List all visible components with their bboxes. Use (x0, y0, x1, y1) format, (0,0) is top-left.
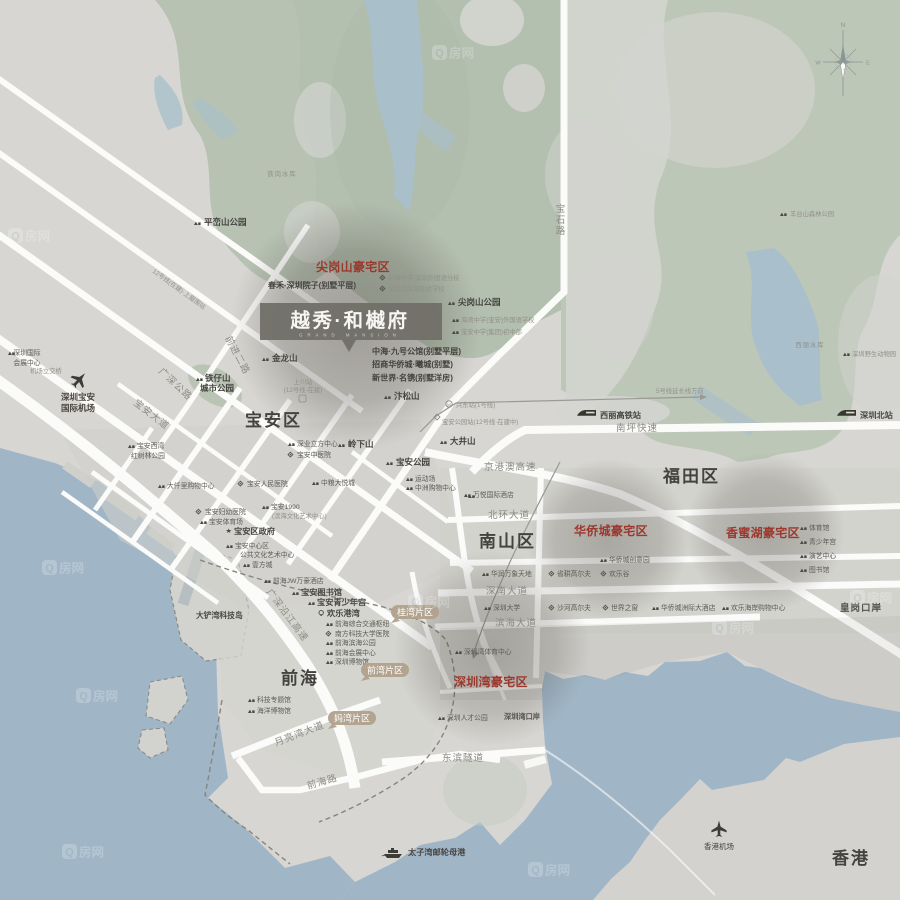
svg-text:福田区: 福田区 (662, 466, 720, 486)
svg-text:会展中心: 会展中心 (13, 358, 40, 367)
svg-text:星辉鸿荣源实验学校: 星辉鸿荣源实验学校 (388, 284, 445, 293)
svg-text:宝安中学(集团)初中部: 宝安中学(集团)初中部 (461, 327, 522, 336)
svg-text:南方科技大学医院: 南方科技大学医院 (335, 629, 390, 638)
svg-text:(12号线·在建): (12号线·在建) (284, 385, 322, 394)
svg-text:省耕高尔夫: 省耕高尔夫 (557, 569, 591, 578)
svg-text:深圳野生动物园: 深圳野生动物园 (852, 349, 896, 358)
svg-text:尖岗山豪宅区: 尖岗山豪宅区 (316, 259, 390, 274)
svg-text:机场立交桥: 机场立交桥 (30, 366, 62, 375)
svg-text:前海: 前海 (281, 668, 319, 688)
svg-text:招商华侨城·曦城(别墅): 招商华侨城·曦城(别墅) (372, 359, 453, 369)
svg-text:香港机场: 香港机场 (704, 841, 734, 851)
svg-text:宝安公园: 宝安公园 (396, 457, 430, 467)
svg-text:宝安体育场: 宝安体育场 (209, 517, 243, 526)
svg-text:妈湾片区: 妈湾片区 (334, 713, 370, 724)
svg-text:宝安中医院: 宝安中医院 (297, 450, 331, 459)
svg-text:汴松山: 汴松山 (394, 391, 420, 401)
svg-text:香蜜湖豪宅区: 香蜜湖豪宅区 (725, 525, 800, 540)
svg-text:大井山: 大井山 (450, 436, 476, 446)
svg-text:岭下山: 岭下山 (348, 439, 374, 449)
svg-text:西丽高铁站: 西丽高铁站 (600, 410, 642, 420)
svg-text:宝安青少年宫: 宝安青少年宫 (317, 597, 366, 607)
svg-text:前海滨海公园: 前海滨海公园 (335, 638, 376, 647)
svg-text:华侨城洲际大酒店: 华侨城洲际大酒店 (661, 603, 716, 612)
svg-text:铁岗水库: 铁岗水库 (267, 169, 296, 178)
svg-text:世界之窗: 世界之窗 (611, 603, 638, 612)
svg-text:香港: 香港 (832, 848, 870, 868)
svg-text:N: N (841, 22, 846, 29)
svg-text:宝安西湾: 宝安西湾 (137, 441, 164, 450)
svg-text:国际机场: 国际机场 (61, 403, 96, 413)
svg-text:(滨海文化艺术中心): (滨海文化艺术中心) (272, 511, 327, 520)
svg-text:华侨城豪宅区: 华侨城豪宅区 (574, 523, 648, 538)
svg-text:兴东站(1号线): 兴东站(1号线) (456, 400, 495, 409)
svg-text:深圳大学: 深圳大学 (493, 603, 520, 612)
svg-text:红树林公园: 红树林公园 (131, 451, 165, 460)
svg-text:大仟里购物中心: 大仟里购物中心 (167, 481, 215, 490)
svg-text:体育馆: 体育馆 (809, 523, 830, 532)
svg-text:前海JW万豪酒店: 前海JW万豪酒店 (273, 576, 324, 585)
svg-text:南山区: 南山区 (479, 531, 536, 551)
svg-text:欢乐海岸购物中心: 欢乐海岸购物中心 (731, 603, 786, 612)
svg-text:深业立方中心: 深业立方中心 (297, 439, 338, 448)
svg-text:中粮大悦城: 中粮大悦城 (321, 478, 355, 487)
svg-text:太子湾邮轮母港: 太子湾邮轮母港 (407, 847, 466, 857)
svg-text:华侨城创意园: 华侨城创意园 (609, 555, 650, 564)
svg-text:E: E (866, 61, 870, 67)
svg-text:深圳湾口岸: 深圳湾口岸 (504, 712, 540, 721)
svg-text:西丽水库: 西丽水库 (795, 340, 824, 349)
svg-text:图书馆: 图书馆 (809, 565, 830, 574)
svg-text:前湾片区: 前湾片区 (367, 665, 403, 676)
svg-text:前海综合交通枢纽: 前海综合交通枢纽 (335, 619, 390, 628)
svg-text:东滨隧道: 东滨隧道 (442, 752, 484, 764)
svg-text:宝安图书馆: 宝安图书馆 (301, 587, 342, 597)
svg-text:GRAND MANSION: GRAND MANSION (299, 333, 401, 338)
svg-text:前海中学·深圳外国语分校: 前海中学·深圳外国语分校 (388, 273, 460, 282)
svg-text:海洋博物馆: 海洋博物馆 (257, 706, 291, 715)
svg-text:深圳北站: 深圳北站 (860, 410, 894, 420)
svg-text:欢乐港湾: 欢乐港湾 (326, 608, 361, 618)
svg-text:深圳湾体育中心: 深圳湾体育中心 (464, 647, 512, 656)
svg-text:宝安区政府: 宝安区政府 (234, 526, 275, 536)
svg-text:中洲购物中心: 中洲购物中心 (415, 483, 456, 492)
svg-text:深圳宝安: 深圳宝安 (61, 392, 96, 402)
svg-text:欢乐谷: 欢乐谷 (609, 569, 630, 578)
svg-text:上川站: 上川站 (294, 377, 314, 386)
svg-text:海湾中学(宝安)外国语学校: 海湾中学(宝安)外国语学校 (461, 315, 535, 324)
svg-text:运动场: 运动场 (415, 474, 436, 483)
svg-text:铁仔山: 铁仔山 (205, 373, 231, 383)
svg-text:沙河高尔夫: 沙河高尔夫 (557, 603, 591, 612)
svg-text:深圳人才公园: 深圳人才公园 (447, 713, 488, 722)
svg-text:5号线延长线方向: 5号线延长线方向 (656, 386, 704, 395)
svg-text:宝安妇幼医院: 宝安妇幼医院 (205, 507, 246, 516)
svg-text:南坪快速: 南坪快速 (616, 422, 658, 434)
svg-text:青少年宫: 青少年宫 (809, 537, 836, 546)
svg-text:宝安中心区: 宝安中心区 (235, 541, 269, 550)
svg-text:滨海大道: 滨海大道 (495, 617, 537, 629)
svg-text:京港澳高速: 京港澳高速 (484, 461, 537, 473)
svg-text:深圳国际: 深圳国际 (13, 348, 40, 357)
svg-text:中海·九号公馆(别墅平层): 中海·九号公馆(别墅平层) (372, 346, 461, 356)
svg-text:深南大道: 深南大道 (486, 585, 528, 597)
svg-text:宝安区: 宝安区 (245, 410, 302, 430)
svg-text:宝: 宝 (556, 203, 567, 215)
svg-text:春禾·深圳院子(别墅平层): 春禾·深圳院子(别墅平层) (268, 280, 356, 290)
svg-text:路: 路 (556, 225, 567, 237)
svg-text:新世界·名镌(别墅洋房): 新世界·名镌(别墅洋房) (372, 373, 453, 383)
svg-text:平峦山公园: 平峦山公园 (204, 217, 247, 227)
svg-text:尖岗山公园: 尖岗山公园 (458, 297, 501, 307)
svg-text:宝安人民医院: 宝安人民医院 (247, 479, 288, 488)
svg-text:深圳湾豪宅区: 深圳湾豪宅区 (454, 674, 528, 689)
svg-text:羊台山森林公园: 羊台山森林公园 (790, 209, 834, 218)
svg-text:北环大道: 北环大道 (488, 509, 530, 521)
svg-text:万悦国际酒店: 万悦国际酒店 (473, 490, 514, 499)
svg-text:大铲湾科技岛: 大铲湾科技岛 (196, 610, 243, 620)
svg-text:前海会展中心: 前海会展中心 (335, 648, 376, 657)
svg-text:壹方城: 壹方城 (252, 560, 273, 569)
svg-text:演艺中心: 演艺中心 (809, 551, 836, 560)
svg-text:金龙山: 金龙山 (271, 353, 298, 363)
svg-text:越秀·和樾府: 越秀·和樾府 (290, 309, 410, 332)
svg-text:科技专题馆: 科技专题馆 (257, 695, 291, 704)
svg-text:宝安1990: 宝安1990 (271, 502, 300, 511)
svg-text:公共文化艺术中心: 公共文化艺术中心 (240, 550, 295, 559)
svg-text:城市公园: 城市公园 (200, 383, 234, 393)
svg-text:华润万象天地: 华润万象天地 (491, 569, 532, 578)
svg-text:M: M (447, 403, 451, 408)
svg-text:石: 石 (556, 215, 567, 226)
svg-text:W: W (815, 61, 821, 67)
svg-text:宝安公园站(12号线·在建中): 宝安公园站(12号线·在建中) (442, 417, 518, 426)
